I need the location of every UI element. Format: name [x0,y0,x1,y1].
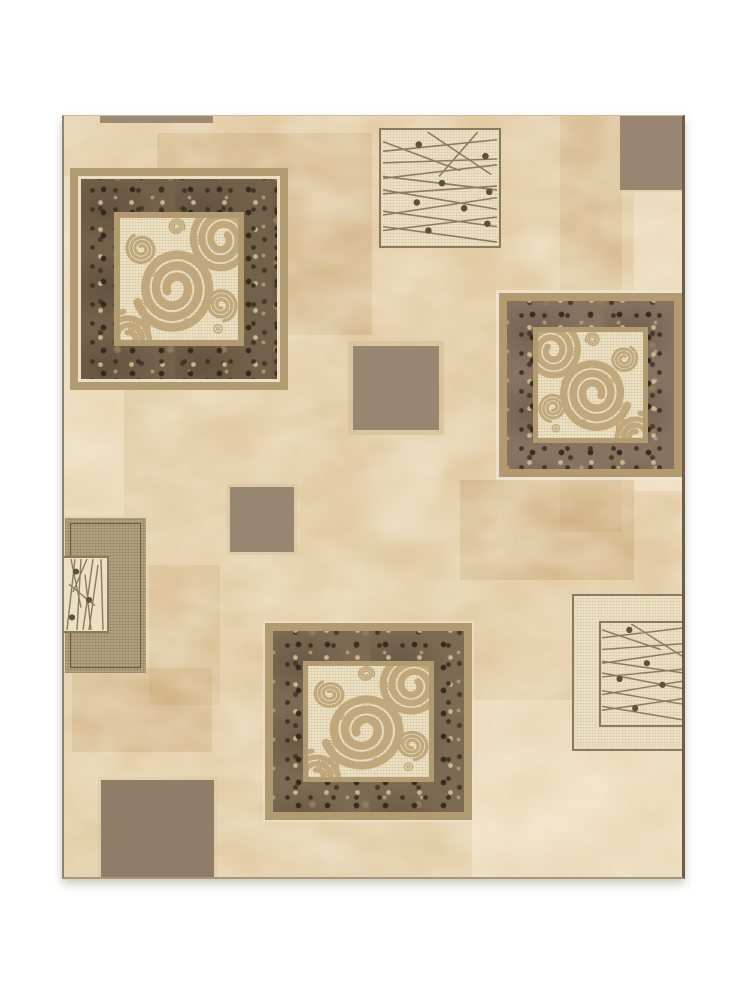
rug-photo [62,115,685,879]
lines-dots-panel-left [64,556,109,633]
spiral-art [538,332,643,438]
lines-dots-art [65,559,106,630]
spiral-panel [114,212,244,346]
taupe-square-center-left [230,487,294,552]
spiral-art [308,666,429,777]
product-photo-page: { "image": { "type": "product-photo", "a… [0,0,750,1000]
patch-rect [460,480,634,580]
taupe-square-center [353,346,439,430]
spiral-art [120,218,238,340]
ornate-spiral-square-middle-right [499,293,682,477]
spiral-panel [533,327,648,443]
patch-rect [72,668,212,752]
lines-dots-inner-box [599,621,685,727]
taupe-square-bottom-left [101,780,214,879]
lines-dots-panel-top [379,128,501,248]
lines-dots-art [602,624,684,724]
lines-dots-panel-bottom-right [572,594,685,751]
lines-dots-art [383,132,497,244]
ornate-spiral-square-bottom-center [265,623,472,820]
spiral-panel [303,661,434,782]
ornate-spiral-square-top-left [70,168,288,390]
taupe-square-top-right [620,116,685,190]
taupe-bar-top-edge [100,116,213,123]
